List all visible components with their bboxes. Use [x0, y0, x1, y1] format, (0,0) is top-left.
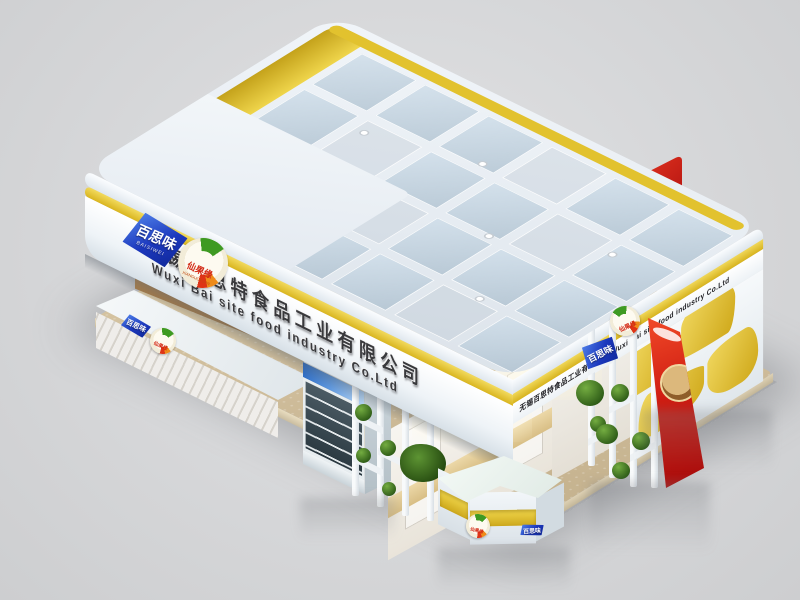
booth-render-scene: 无锡百思特食品工业有限公司 Wuxi Bai site food industr…	[0, 0, 800, 600]
shelf-plant	[356, 448, 371, 463]
shrub	[596, 424, 618, 444]
fruit-logo-text: 仙果缘	[152, 340, 169, 353]
fruit-logo-text: 仙果缘	[470, 526, 485, 535]
shelf-plant	[611, 384, 629, 402]
tower-post	[630, 327, 637, 487]
floor-reflection	[642, 410, 772, 470]
shrub	[576, 380, 604, 406]
blue-brand-logo: 百思味	[520, 523, 545, 537]
floor-reflection	[590, 482, 710, 552]
floor-reflection	[438, 548, 570, 590]
fruit-logo-text: 仙果缘	[617, 318, 637, 334]
shelf-plant	[380, 440, 396, 456]
blue-logo-text: 百思味	[523, 525, 542, 535]
shelf-plant	[382, 482, 396, 496]
floor-reflection	[300, 498, 395, 540]
shrub	[612, 462, 630, 479]
